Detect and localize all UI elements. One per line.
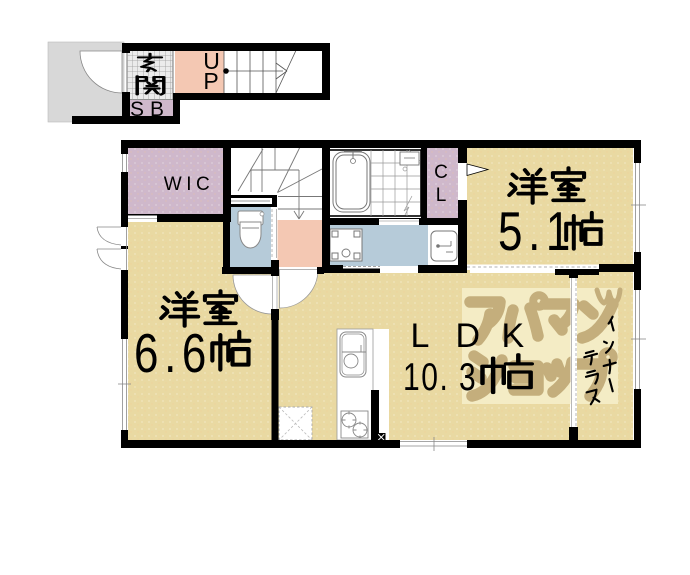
svg-text:D: D <box>456 317 481 355</box>
svg-text:L: L <box>411 317 430 355</box>
svg-text:5.1: 5.1 <box>498 200 576 262</box>
svg-text:K: K <box>502 317 525 355</box>
svg-text:6.6: 6.6 <box>134 322 212 384</box>
svg-text:WIC: WIC <box>164 174 214 195</box>
svg-text:10.: 10. <box>403 357 449 399</box>
svg-text:L: L <box>436 185 447 206</box>
svg-text:3: 3 <box>459 357 476 399</box>
svg-text:C: C <box>434 162 448 183</box>
svg-text:P: P <box>203 68 218 94</box>
